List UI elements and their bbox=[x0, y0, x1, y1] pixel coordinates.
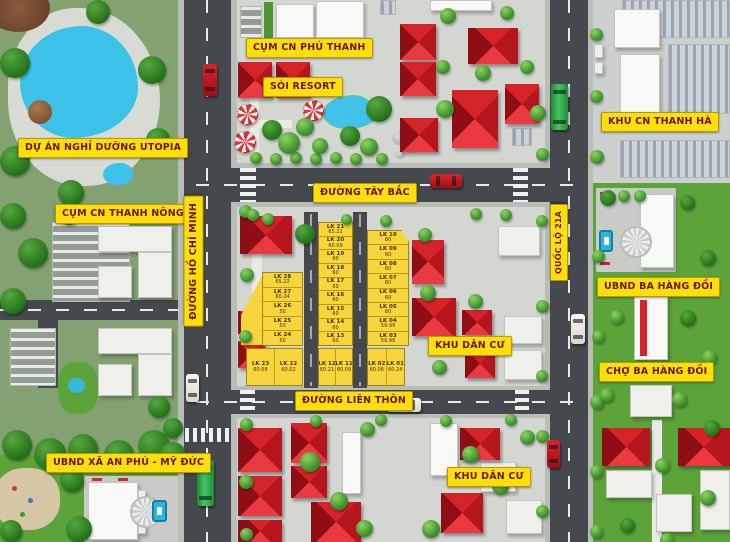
factory-building bbox=[276, 4, 314, 38]
tree-icon bbox=[592, 330, 605, 343]
tree-icon bbox=[138, 56, 166, 84]
tree-icon bbox=[330, 492, 348, 510]
tree-icon bbox=[341, 214, 352, 225]
tree-icon bbox=[239, 475, 253, 489]
lot-lk-27[interactable]: LK 2760.24 bbox=[263, 288, 302, 303]
truck bbox=[594, 44, 603, 58]
crosswalk bbox=[515, 390, 529, 414]
tree-icon bbox=[375, 414, 387, 426]
tree-icon bbox=[436, 100, 454, 118]
tree-icon bbox=[536, 300, 549, 313]
tree-icon bbox=[704, 420, 720, 436]
tree-icon bbox=[312, 138, 328, 154]
park-pond bbox=[68, 378, 85, 393]
tree-icon bbox=[2, 430, 32, 460]
tree-icon bbox=[418, 228, 432, 242]
hedge bbox=[264, 2, 273, 38]
car-icon bbox=[430, 174, 462, 188]
apartment-building bbox=[98, 266, 132, 298]
house-roof bbox=[238, 428, 282, 472]
round-pool bbox=[57, 66, 101, 108]
house-roof bbox=[441, 493, 483, 533]
tree-icon bbox=[310, 153, 322, 165]
tree-icon bbox=[240, 418, 253, 431]
lot-lk-11[interactable]: LK 1160.09 bbox=[336, 349, 352, 385]
tree-icon bbox=[436, 60, 450, 74]
tree-icon bbox=[247, 209, 259, 221]
tree-icon bbox=[422, 520, 440, 538]
lot-row-c: LK 0260.06LK 0160.24 bbox=[367, 348, 405, 386]
house-roof bbox=[412, 298, 456, 336]
lot-lk-17[interactable]: LK 1760 bbox=[319, 278, 352, 292]
tree-icon bbox=[66, 516, 92, 542]
tree-icon bbox=[680, 195, 695, 210]
lot-lk-24[interactable]: LK 2450 bbox=[263, 331, 302, 345]
lot-lk-18[interactable]: LK 1860 bbox=[319, 264, 352, 278]
lot-lk-07[interactable]: LK 0760 bbox=[368, 274, 408, 288]
lot-lk-16[interactable]: LK 1660 bbox=[319, 291, 352, 305]
truck bbox=[594, 62, 603, 74]
label-duong-lien-thon: ĐƯỜNG LIÊN THÔN bbox=[295, 391, 413, 411]
factory-building bbox=[316, 1, 364, 38]
tree-icon bbox=[380, 215, 392, 227]
lot-row-a: LK 2360.08LK 2260.02 bbox=[246, 348, 303, 386]
thatch-umbrella-icon bbox=[28, 100, 52, 124]
warehouse-roof bbox=[668, 44, 730, 114]
lot-lk-15[interactable]: LK 1560 bbox=[319, 305, 352, 319]
label-khu-dan-cu-2: KHU DÂN CƯ bbox=[447, 467, 531, 487]
tree-icon bbox=[590, 90, 603, 103]
villa-roof bbox=[452, 90, 498, 148]
apartment-building bbox=[98, 364, 132, 396]
house-roof bbox=[412, 240, 444, 284]
tree-icon bbox=[290, 152, 302, 164]
tree-icon bbox=[500, 209, 512, 221]
tree-icon bbox=[310, 415, 322, 427]
tree-icon bbox=[500, 6, 514, 20]
lot-lk-13[interactable]: LK 1360 bbox=[319, 332, 352, 345]
tree-icon bbox=[536, 148, 549, 161]
label-ubnd-ba-hang-doi: UBND BA HÀNG ĐỒI bbox=[597, 277, 720, 297]
tree-icon bbox=[420, 285, 436, 301]
tree-icon bbox=[440, 415, 452, 427]
tree-icon bbox=[148, 396, 170, 418]
lot-lk-23[interactable]: LK 2360.08 bbox=[247, 349, 275, 385]
tree-icon bbox=[296, 118, 314, 136]
label-du-an-utopia: DỰ ÁN NGHỈ DƯỠNG UTOPIA bbox=[18, 138, 188, 158]
tree-icon bbox=[536, 505, 549, 518]
lot-lk-02[interactable]: LK 0260.06 bbox=[368, 349, 387, 385]
lot-column-b: LK 2165.21LK 2060.09LK 1960LK 1860LK 176… bbox=[318, 222, 353, 346]
label-cum-cn-thanh-nong: CỤM CN THANH NÔNG bbox=[55, 204, 191, 224]
apartment-building bbox=[98, 226, 172, 252]
car-icon bbox=[571, 314, 585, 344]
lot-lk-03[interactable]: LK 0359.99 bbox=[368, 332, 408, 345]
tree-icon bbox=[520, 60, 534, 74]
lot-lk-01[interactable]: LK 0160.24 bbox=[387, 349, 405, 385]
label-ubnd-an-phu: UBND XÃ AN PHÚ - MỸ ĐỨC bbox=[46, 453, 211, 473]
lot-lk-09[interactable]: LK 0960 bbox=[368, 245, 408, 259]
market-building bbox=[630, 385, 672, 417]
tree-icon bbox=[672, 392, 687, 407]
tree-icon bbox=[620, 518, 635, 533]
tree-icon bbox=[680, 310, 696, 326]
villa-roof bbox=[400, 62, 436, 96]
house-roof bbox=[602, 428, 650, 466]
villa-roof bbox=[468, 28, 518, 64]
tree-icon bbox=[660, 533, 674, 542]
tree-icon bbox=[239, 330, 252, 343]
tree-icon bbox=[655, 458, 670, 473]
bus-icon bbox=[551, 84, 568, 130]
label-duong-ho-chi-minh: ĐƯỜNG HỒ CHÍ MINH bbox=[184, 196, 204, 327]
lot-lk-12[interactable]: LK 1260.21 bbox=[319, 349, 336, 385]
tree-icon bbox=[18, 238, 48, 268]
umbrella-icon bbox=[234, 131, 256, 153]
lot-column-c: LK 1060LK 0960LK 0860LK 0760LK 0660LK 05… bbox=[367, 230, 409, 346]
tree-icon bbox=[376, 153, 388, 165]
tree-icon bbox=[468, 294, 483, 309]
landmark-pin-icon bbox=[599, 230, 613, 252]
tree-icon bbox=[270, 153, 282, 165]
splash-pool bbox=[103, 163, 133, 185]
tree-icon bbox=[440, 8, 456, 24]
lot-lk-19[interactable]: LK 1960 bbox=[319, 250, 352, 264]
tree-icon bbox=[340, 126, 360, 146]
tree-icon bbox=[0, 48, 30, 78]
crosswalk bbox=[513, 168, 528, 202]
apartment-building bbox=[138, 354, 172, 396]
tree-icon bbox=[0, 520, 22, 542]
factory-building bbox=[620, 54, 660, 114]
lot-lk-22[interactable]: LK 2260.02 bbox=[275, 349, 302, 385]
landmark-pin-icon bbox=[152, 500, 167, 522]
tree-icon bbox=[600, 388, 614, 402]
tree-icon bbox=[590, 28, 603, 41]
tree-icon bbox=[462, 446, 479, 463]
tree-icon bbox=[350, 153, 362, 165]
parking-rows bbox=[240, 6, 262, 38]
tree-icon bbox=[360, 422, 375, 437]
tree-icon bbox=[520, 430, 535, 445]
tree-icon bbox=[590, 465, 603, 478]
tree-icon bbox=[700, 250, 716, 266]
tree-icon bbox=[432, 360, 447, 375]
car-icon bbox=[203, 64, 217, 96]
house-building bbox=[656, 494, 692, 532]
tree-icon bbox=[262, 213, 274, 225]
apartment-building bbox=[98, 328, 172, 354]
house-roof bbox=[462, 310, 492, 335]
tree-icon bbox=[330, 152, 342, 164]
tree-icon bbox=[590, 150, 604, 164]
label-quoc-lo-21a: QUỐC LỘ 21A bbox=[550, 204, 568, 281]
lot-lk-28[interactable]: LK 2865.22 bbox=[263, 273, 302, 288]
crosswalk bbox=[240, 390, 255, 414]
factory-building bbox=[614, 9, 660, 48]
tree-icon bbox=[356, 520, 373, 537]
house-building bbox=[506, 500, 542, 534]
tree-icon bbox=[360, 138, 378, 156]
lot-lk-04[interactable]: LK 0459.99 bbox=[368, 317, 408, 331]
master-plan-map: LK 2865.22LK 2760.24LK 2650LK 2550LK 245… bbox=[0, 0, 730, 542]
tree-icon bbox=[240, 528, 253, 541]
fountain bbox=[620, 226, 652, 258]
tree-icon bbox=[475, 65, 491, 81]
tree-icon bbox=[590, 525, 603, 538]
lot-lk-26[interactable]: LK 2650 bbox=[263, 302, 302, 317]
tree-icon bbox=[58, 180, 84, 206]
tree-icon bbox=[300, 452, 320, 472]
crosswalk bbox=[185, 428, 230, 442]
apartment-building bbox=[138, 252, 172, 298]
tree-icon bbox=[536, 215, 548, 227]
lot-lk-14[interactable]: LK 1460 bbox=[319, 319, 352, 333]
tree-icon bbox=[536, 370, 548, 382]
tree-icon bbox=[278, 132, 300, 154]
house-building bbox=[342, 432, 361, 494]
lot-lk-05[interactable]: LK 0560 bbox=[368, 303, 408, 317]
lot-lk-10[interactable]: LK 1060 bbox=[368, 231, 408, 245]
tree-icon bbox=[0, 203, 26, 229]
tree-icon bbox=[250, 152, 262, 164]
lot-lk-25[interactable]: LK 2550 bbox=[263, 317, 302, 332]
lot-column-a: LK 2865.22LK 2760.24LK 2650LK 2550LK 245… bbox=[262, 272, 303, 346]
label-khu-dan-cu-1: KHU DÂN CƯ bbox=[428, 336, 512, 356]
label-cho-ba-hang-doi: CHỢ BA HÀNG ĐỒI bbox=[599, 362, 714, 382]
car-icon bbox=[186, 374, 199, 402]
tree-icon bbox=[505, 414, 517, 426]
factory-building bbox=[430, 0, 492, 11]
house-building bbox=[606, 470, 652, 498]
crosswalk bbox=[240, 168, 256, 202]
lot-lk-08[interactable]: LK 0860 bbox=[368, 260, 408, 274]
villa-roof bbox=[400, 24, 436, 60]
label-cum-cn-phu-thanh: CỤM CN PHÚ THANH bbox=[246, 38, 373, 58]
tree-icon bbox=[700, 490, 716, 506]
label-khu-cn-thanh-ha: KHU CN THANH HÀ bbox=[601, 112, 719, 132]
lot-row-b: LK 1260.21LK 1160.09 bbox=[318, 348, 353, 386]
tree-icon bbox=[610, 310, 624, 324]
tree-icon bbox=[86, 0, 110, 24]
tree-icon bbox=[0, 288, 26, 314]
tree-icon bbox=[366, 96, 392, 122]
house-building bbox=[498, 226, 540, 256]
tree-icon bbox=[240, 268, 254, 282]
villa-roof bbox=[400, 118, 438, 152]
market-red-stripe bbox=[640, 300, 647, 356]
warehouse-roof bbox=[620, 140, 730, 178]
label-soi-resort: SÓI RESORT bbox=[263, 77, 343, 97]
label-duong-tay-bac: ĐƯỜNG TÂY BẮC bbox=[313, 183, 417, 203]
tree-icon bbox=[600, 190, 616, 206]
house-roof bbox=[678, 428, 730, 466]
tree-icon bbox=[592, 250, 605, 263]
lot-lk-20[interactable]: LK 2060.09 bbox=[319, 237, 352, 251]
car-icon bbox=[547, 440, 560, 468]
lot-lk-06[interactable]: LK 0660 bbox=[368, 289, 408, 303]
tree-icon bbox=[295, 224, 315, 244]
umbrella-icon bbox=[237, 104, 258, 125]
tree-icon bbox=[530, 105, 546, 121]
parking-rows bbox=[10, 328, 56, 386]
lot-lk-21[interactable]: LK 2165.21 bbox=[319, 223, 352, 237]
tree-icon bbox=[470, 208, 482, 220]
